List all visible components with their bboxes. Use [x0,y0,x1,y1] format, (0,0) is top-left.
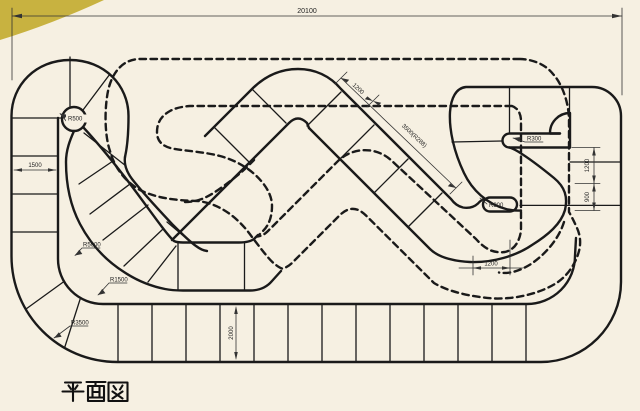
svg-text:R300: R300 [527,137,542,143]
svg-text:R3500: R3500 [71,321,89,327]
svg-text:2000: 2000 [229,326,235,340]
svg-text:1500: 1500 [28,163,42,169]
svg-text:R500: R500 [68,117,83,123]
svg-text:20100: 20100 [297,8,317,15]
svg-text:1200: 1200 [585,158,591,172]
svg-text:1200: 1200 [484,262,498,268]
svg-text:R5000: R5000 [83,243,101,249]
svg-text:R300: R300 [489,203,504,209]
svg-text:900: 900 [585,191,591,202]
svg-text:R1500: R1500 [110,278,128,284]
